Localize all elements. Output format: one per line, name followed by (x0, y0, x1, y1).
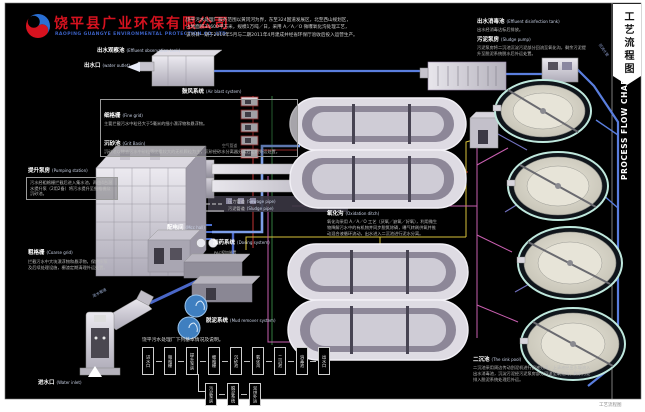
sidebar-title-cn: 工艺流程图 (620, 11, 635, 76)
sludge-pump-desc: 污泥泵房将二沉池沉淀污泥部分回流至氧化沟，剩余污泥提升至脱泥系统脱水后外运处置。 (477, 45, 587, 57)
fine-grid-desc: 主要拦截污水中粒径大于5毫米的细小漂浮物和悬浮物。 (104, 121, 294, 127)
label-cn: 污泥泵房 (477, 37, 499, 43)
legend-en: (Sludge pipe) (247, 206, 274, 211)
water-outlet-label: 出水口(water outlet) (84, 63, 130, 69)
oxidation-ditch-label: 氧化沟(Oxidation ditch) (327, 211, 379, 217)
water-inlet-label: 进水口(Water inlet) (38, 380, 82, 386)
flow-step: 氧化沟 (252, 347, 264, 375)
mini-flow-title: 饶平污水处理厂下列基本情况及说明。 (142, 336, 224, 343)
flow-step: 沉砂池 (230, 347, 242, 375)
label-en: (The sink pool) (492, 357, 522, 362)
label-cn: 粗格栅 (28, 250, 45, 256)
label-en: (Grit Basin) (123, 141, 146, 146)
label-cn: 脱泥系统 (206, 318, 228, 324)
flow-connector (288, 361, 294, 362)
flow-step: 提升泵房 (186, 347, 198, 375)
clarifier-2 (507, 152, 608, 220)
label-en: (Dosing system) (237, 240, 270, 245)
flow-step: 进水口 (142, 347, 154, 375)
label-cn: 鼓风系统 (182, 89, 204, 95)
label-cn: 出水观察池 (97, 48, 125, 54)
pumping-station-info: 污水经粗格栅拦截后进入集水池，再由4台潜水提升泵（2用2备）将污水提升至细格栅及… (26, 177, 118, 200)
flow-branch-connector (198, 374, 205, 392)
sludge-pump-label: 污泥泵房(Sludge pump) (477, 37, 531, 43)
label-en: (Mud remover system) (230, 318, 275, 323)
flow-connector (219, 394, 225, 395)
flow-connector (244, 361, 250, 362)
clarifier-1 (493, 80, 591, 142)
dosing-system-sub-label: PAC投加装置 (214, 250, 236, 256)
label-cn: 二沉池 (473, 357, 490, 363)
effluent-observation-tank-label: 出水观察池(Effluent observation tank) (97, 48, 180, 54)
label-cn: 氧化沟 (327, 211, 344, 217)
label-en: (Water inlet) (57, 380, 82, 385)
clarifier-3 (517, 227, 622, 299)
flow-connector (200, 361, 206, 362)
label-cn: 加药系统 (213, 240, 235, 246)
grit-basin-label: 沉砂池(Grit Basin) (104, 130, 294, 149)
label-en: (Effluent observation tank) (127, 48, 181, 53)
flow-connector (156, 361, 162, 362)
oxidation-ditch-desc: 氧化沟采用 A／A／O 工艺（厌氧／缺氧／好氧），利用微生物降解污水中的有机物并… (327, 219, 439, 237)
label-cn: 进水口 (38, 380, 55, 386)
flow-connector (310, 361, 316, 362)
process-flow-chart-page: 饶平县广业环保有限公司 RAOPING GUANGYE ENVIRONMENTA… (0, 0, 645, 412)
legend-cn: 压力管道 (228, 199, 245, 204)
flow-connector (222, 361, 228, 362)
label-en: (water outlet) (103, 63, 130, 68)
pumping-station-label: 提升泵房(Pumping station) (28, 168, 88, 174)
mud-system-label: 脱泥系统(Mud remover system) (206, 318, 276, 324)
label-cn: 出水消毒池 (477, 19, 505, 25)
return-pump-unit (542, 58, 578, 82)
flow-step: 泥饼外运 (249, 383, 261, 406)
disinfection-tank-label: 出水消毒池(Effluent disinfection tank) (477, 19, 560, 25)
flow-step: 消毒池 (296, 347, 308, 375)
pumping-station-desc: 污水经粗格栅拦截后进入集水池，再由4台潜水提升泵（2用2备）将污水提升至细格栅及… (30, 180, 114, 197)
label-cn: 出水口 (84, 63, 101, 69)
footer-note: 工艺流程图 (599, 402, 622, 408)
legend-cn: 污泥管道 (228, 206, 245, 211)
label-en: (Oxidation ditch) (346, 211, 380, 216)
flow-step: 细格栅 (208, 347, 220, 375)
flow-step: 出水口 (318, 347, 330, 375)
coarse-grid-label: 粗格栅(Coarse grid) (28, 250, 73, 256)
intro-line: 占地面积34600平方米，规模1万吨／日，采用 A／A／O 微曝氧化沟处理工艺， (186, 24, 424, 31)
flow-step: 二沉池 (274, 347, 286, 375)
label-cn: 配电间 (167, 225, 184, 231)
grit-basin-desc: 沉砂池以除去污水中砂粒等比重较大的无机颗粒为主，沉砂经砂水分离器分离后定期外运处… (104, 149, 294, 155)
flow-step: 污泥泵房 (205, 383, 217, 406)
mini-flow-main-row: 进水口 粗格栅 提升泵房 细格栅 沉砂池 氧化沟 二沉池 消毒池 出水口 (142, 347, 330, 375)
flow-step: 粗格栅 (164, 347, 176, 375)
flow-step: 脱泥系统 (227, 383, 239, 406)
air-blast-system-label: 鼓风系统(Air blast system) (182, 89, 241, 95)
disinfection-tank-desc: 出水经消毒达标后排放。 (477, 27, 602, 33)
label-cn: 提升泵房 (28, 168, 50, 174)
secondary-clarifier-label: 二沉池(The sink pool) (473, 357, 521, 363)
label-en: (Fine grid) (123, 113, 143, 118)
legend-en: (Sewage pipe) (247, 199, 276, 204)
flow-connector (241, 394, 247, 395)
label-en: (Pumping station) (52, 168, 88, 173)
mini-flow-branch-row: 污泥泵房 脱泥系统 泥饼外运 (205, 383, 261, 406)
fine-grid-grit-basin-info: 细格栅(Fine grid) 主要拦截污水中粒径大于5毫米的细小漂浮物和悬浮物。… (100, 99, 298, 157)
label-en: (Sludge pump) (501, 37, 531, 42)
flow-connector (266, 361, 272, 362)
intro-line: 该项目一期于2010年5月与二期2011年4月建成并经省环保厅验收后投入运营生产… (186, 32, 424, 39)
plant-intro-text: 饶平污水处理厂服务范围以黄冈河为界，东至324国道发展区，北至西山规划区， 占地… (186, 17, 424, 39)
intro-line: 饶平污水处理厂服务范围以黄冈河为界，东至324国道发展区，北至西山规划区， (186, 17, 424, 24)
oxidation-ditch-group-a (290, 98, 466, 208)
label-en: (Mcc hall) (186, 225, 205, 230)
secondary-clarifier-desc: 二沉池采用周边传动刮泥机进行固液分离，上清液经出水堰流入出水消毒池，沉淀污泥经污… (473, 365, 591, 383)
coarse-grid-desc: 拦截污水中大块漂浮物和悬浮物，保护水泵及后续处理设施，栅渣定期清理外运处置。 (28, 259, 110, 271)
legend-item-sewage-pipe: 压力管道(Sewage pipe) (228, 200, 276, 205)
oxidation-ditch-group-b (288, 244, 468, 360)
legend-item-sludge-pipe: 污泥管道(Sludge pipe) (228, 207, 274, 212)
fine-grid-label: 细格栅(Fine grid) (104, 102, 294, 121)
label-en: (Coarse grid) (47, 250, 73, 255)
label-en: (Air blast system) (206, 89, 241, 94)
label-en: (Effluent disinfection tank) (507, 19, 560, 24)
sidebar-title-en: PROCESS FLOW CHART (620, 73, 629, 180)
dosing-system-label: 加药系统(Dosing system) (213, 240, 270, 246)
flow-connector (178, 361, 184, 362)
label-cn: 沉砂池 (104, 141, 121, 147)
label-cn: 细格栅 (104, 113, 121, 119)
mcc-hall-label: 配电间(Mcc hall) (167, 225, 205, 231)
disinfection-tank (420, 62, 506, 90)
